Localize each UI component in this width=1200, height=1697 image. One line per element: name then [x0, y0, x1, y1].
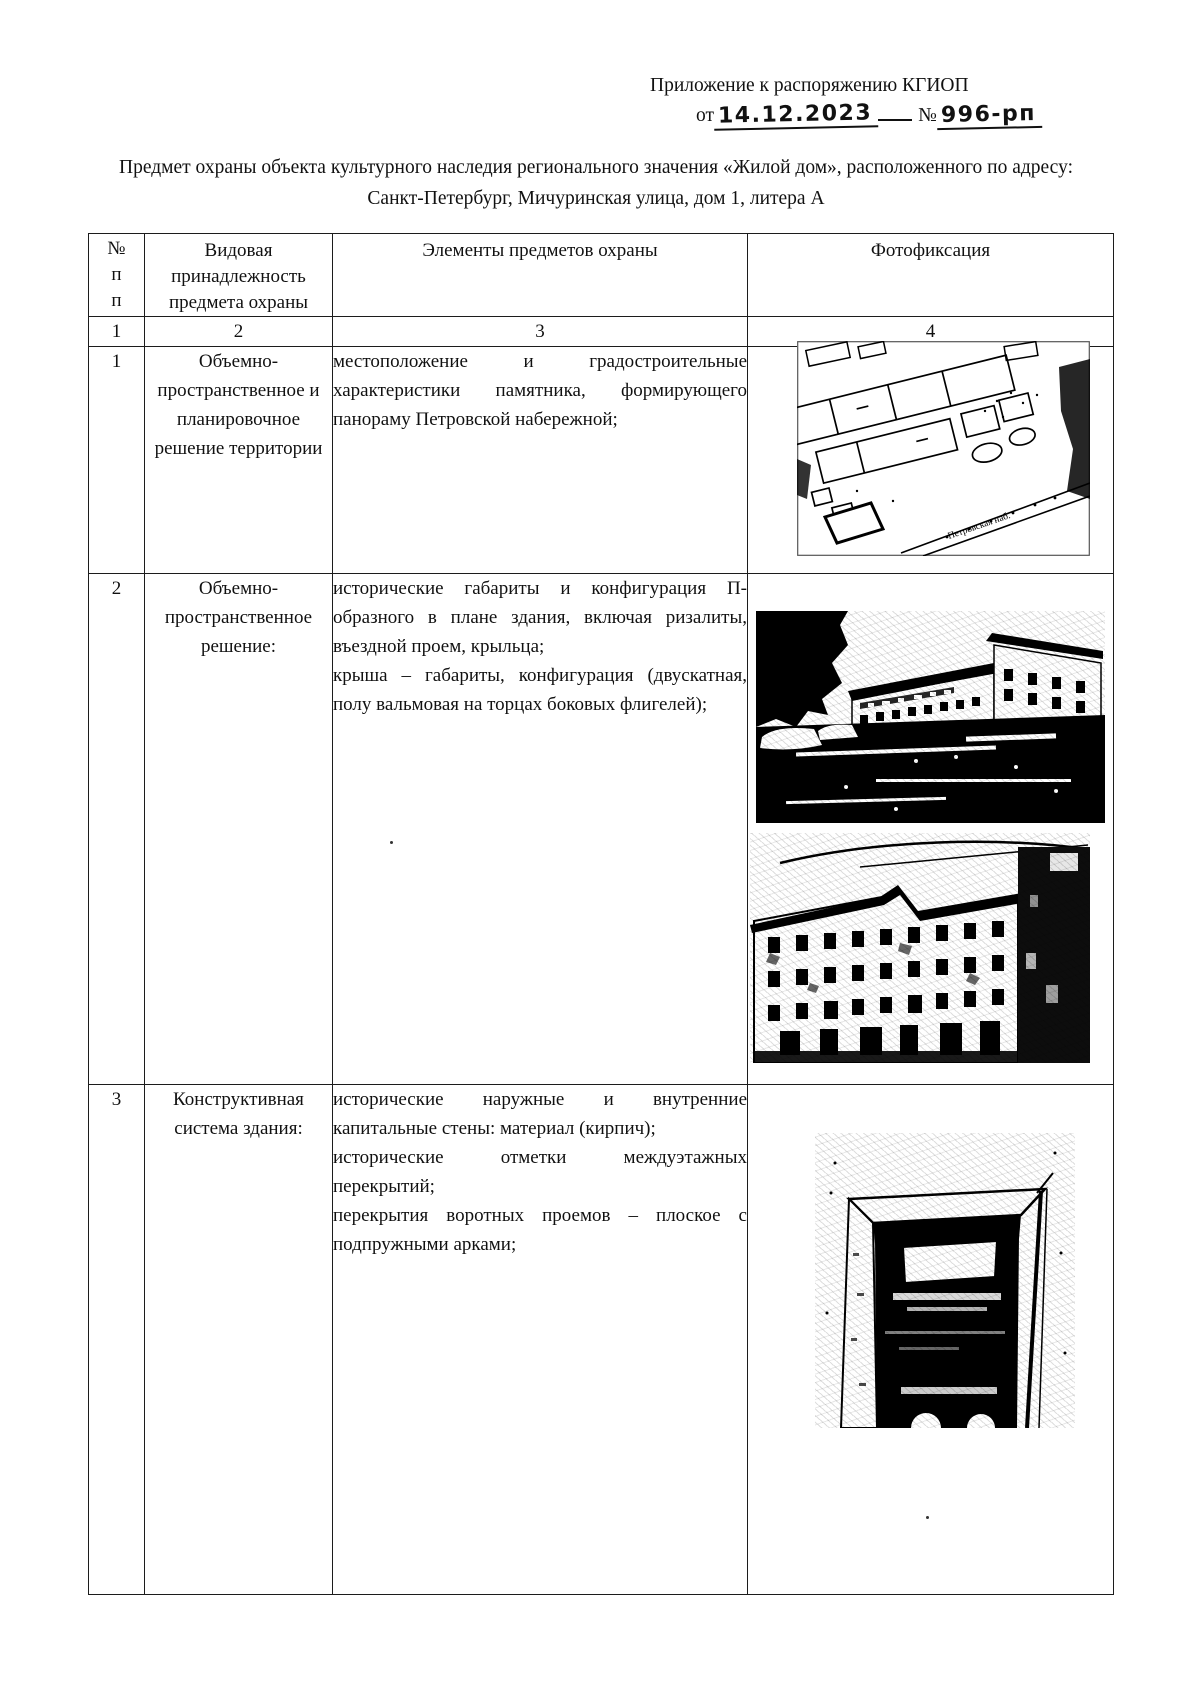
table-header-row: № п п Видовая принадлежность предмета ох… [89, 234, 1114, 317]
handwritten-date: 14.12.2023 [714, 101, 879, 130]
courtyard-facade-svg [750, 833, 1090, 1063]
row2-number: 2 [89, 574, 145, 1085]
handwritten-number: 996-рп [937, 102, 1043, 130]
row1-elements: местоположение и градостроительные харак… [333, 347, 748, 574]
scan-speck [390, 841, 393, 844]
scan-speck [926, 1516, 929, 1519]
colnum-1: 1 [89, 317, 145, 347]
colnum-2: 2 [145, 317, 333, 347]
header-cell-number: № п п [89, 234, 145, 317]
header-num-line3: п [89, 288, 144, 314]
header-cell-photo: Фотофиксация [748, 234, 1114, 317]
row3-number: 3 [89, 1085, 145, 1595]
header-num-line1: № [89, 236, 144, 262]
appendix-title: Приложение к распоряжению КГИОП [650, 74, 1050, 98]
document-title: Предмет охраны объекта культурного насле… [92, 152, 1100, 214]
header-cell-elements: Элементы предметов охраны [333, 234, 748, 317]
header-num-line2: п [89, 262, 144, 288]
gateway-arch-svg [815, 1133, 1075, 1428]
street-panorama-svg [756, 611, 1105, 823]
document-page: Приложение к распоряжению КГИОП от14.12.… [0, 0, 1200, 1697]
colnum-3: 3 [333, 317, 748, 347]
appendix-date-number: от14.12.2023№996-рп [696, 103, 1050, 129]
street-panorama-image [756, 611, 1105, 823]
row3-element-3: перекрытия воротных проемов – плоское с … [333, 1201, 747, 1259]
row2-elements: исторические габариты и конфигурация П-о… [333, 574, 748, 1085]
header-cell-category: Видовая принадлежность предмета охраны [145, 234, 333, 317]
appendix-header: Приложение к распоряжению КГИОП от14.12.… [650, 74, 1050, 129]
row3-category: Конструктивная система здания: [145, 1085, 333, 1595]
row3-elements: исторические наружные и внутренние капит… [333, 1085, 748, 1595]
row1-number: 1 [89, 347, 145, 574]
underline-spacer [878, 119, 912, 121]
site-plan-image: Петровская наб. [797, 341, 1090, 556]
row3-element-2: исторические отметки междуэтажных перекр… [333, 1143, 747, 1201]
site-plan-svg: Петровская наб. [797, 341, 1090, 556]
row2-element-2: крыша – габариты, конфигурация (двускатн… [333, 661, 747, 719]
row2-element-1: исторические габариты и конфигурация П-о… [333, 574, 747, 661]
courtyard-facade-image [750, 833, 1090, 1063]
row1-element-1: местоположение и градостроительные харак… [333, 347, 747, 434]
row3-element-1: исторические наружные и внутренние капит… [333, 1085, 747, 1143]
gateway-arch-image [815, 1133, 1075, 1428]
number-prefix: № [918, 105, 937, 126]
row1-category: Объемно-пространственное и планировочное… [145, 347, 333, 574]
row2-category: Объемно-пространственное решение: [145, 574, 333, 1085]
date-prefix: от [696, 105, 714, 126]
